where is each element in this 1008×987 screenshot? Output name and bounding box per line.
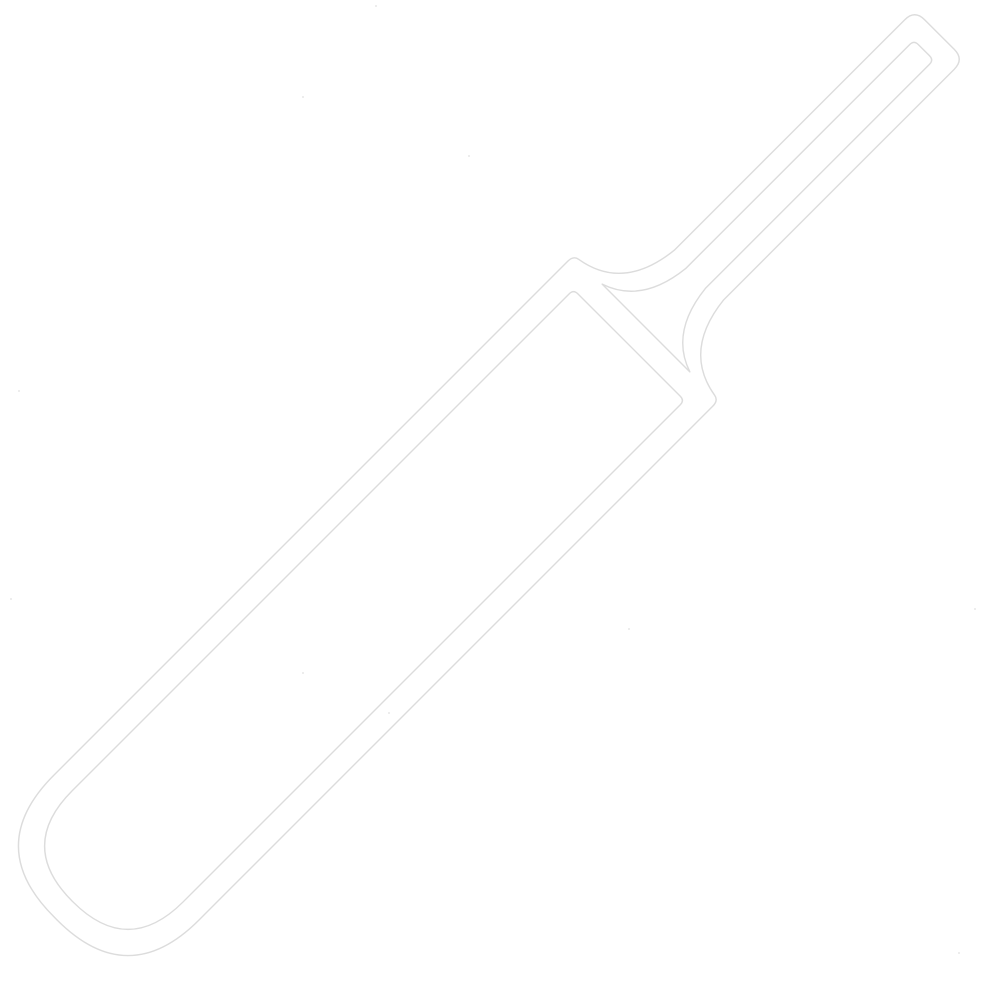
cricket-bat-outline-path [0, 0, 1008, 987]
cricket-bat-icon [0, 0, 1008, 987]
icon-canvas [0, 0, 1008, 987]
cricket-bat-group [0, 0, 1008, 987]
